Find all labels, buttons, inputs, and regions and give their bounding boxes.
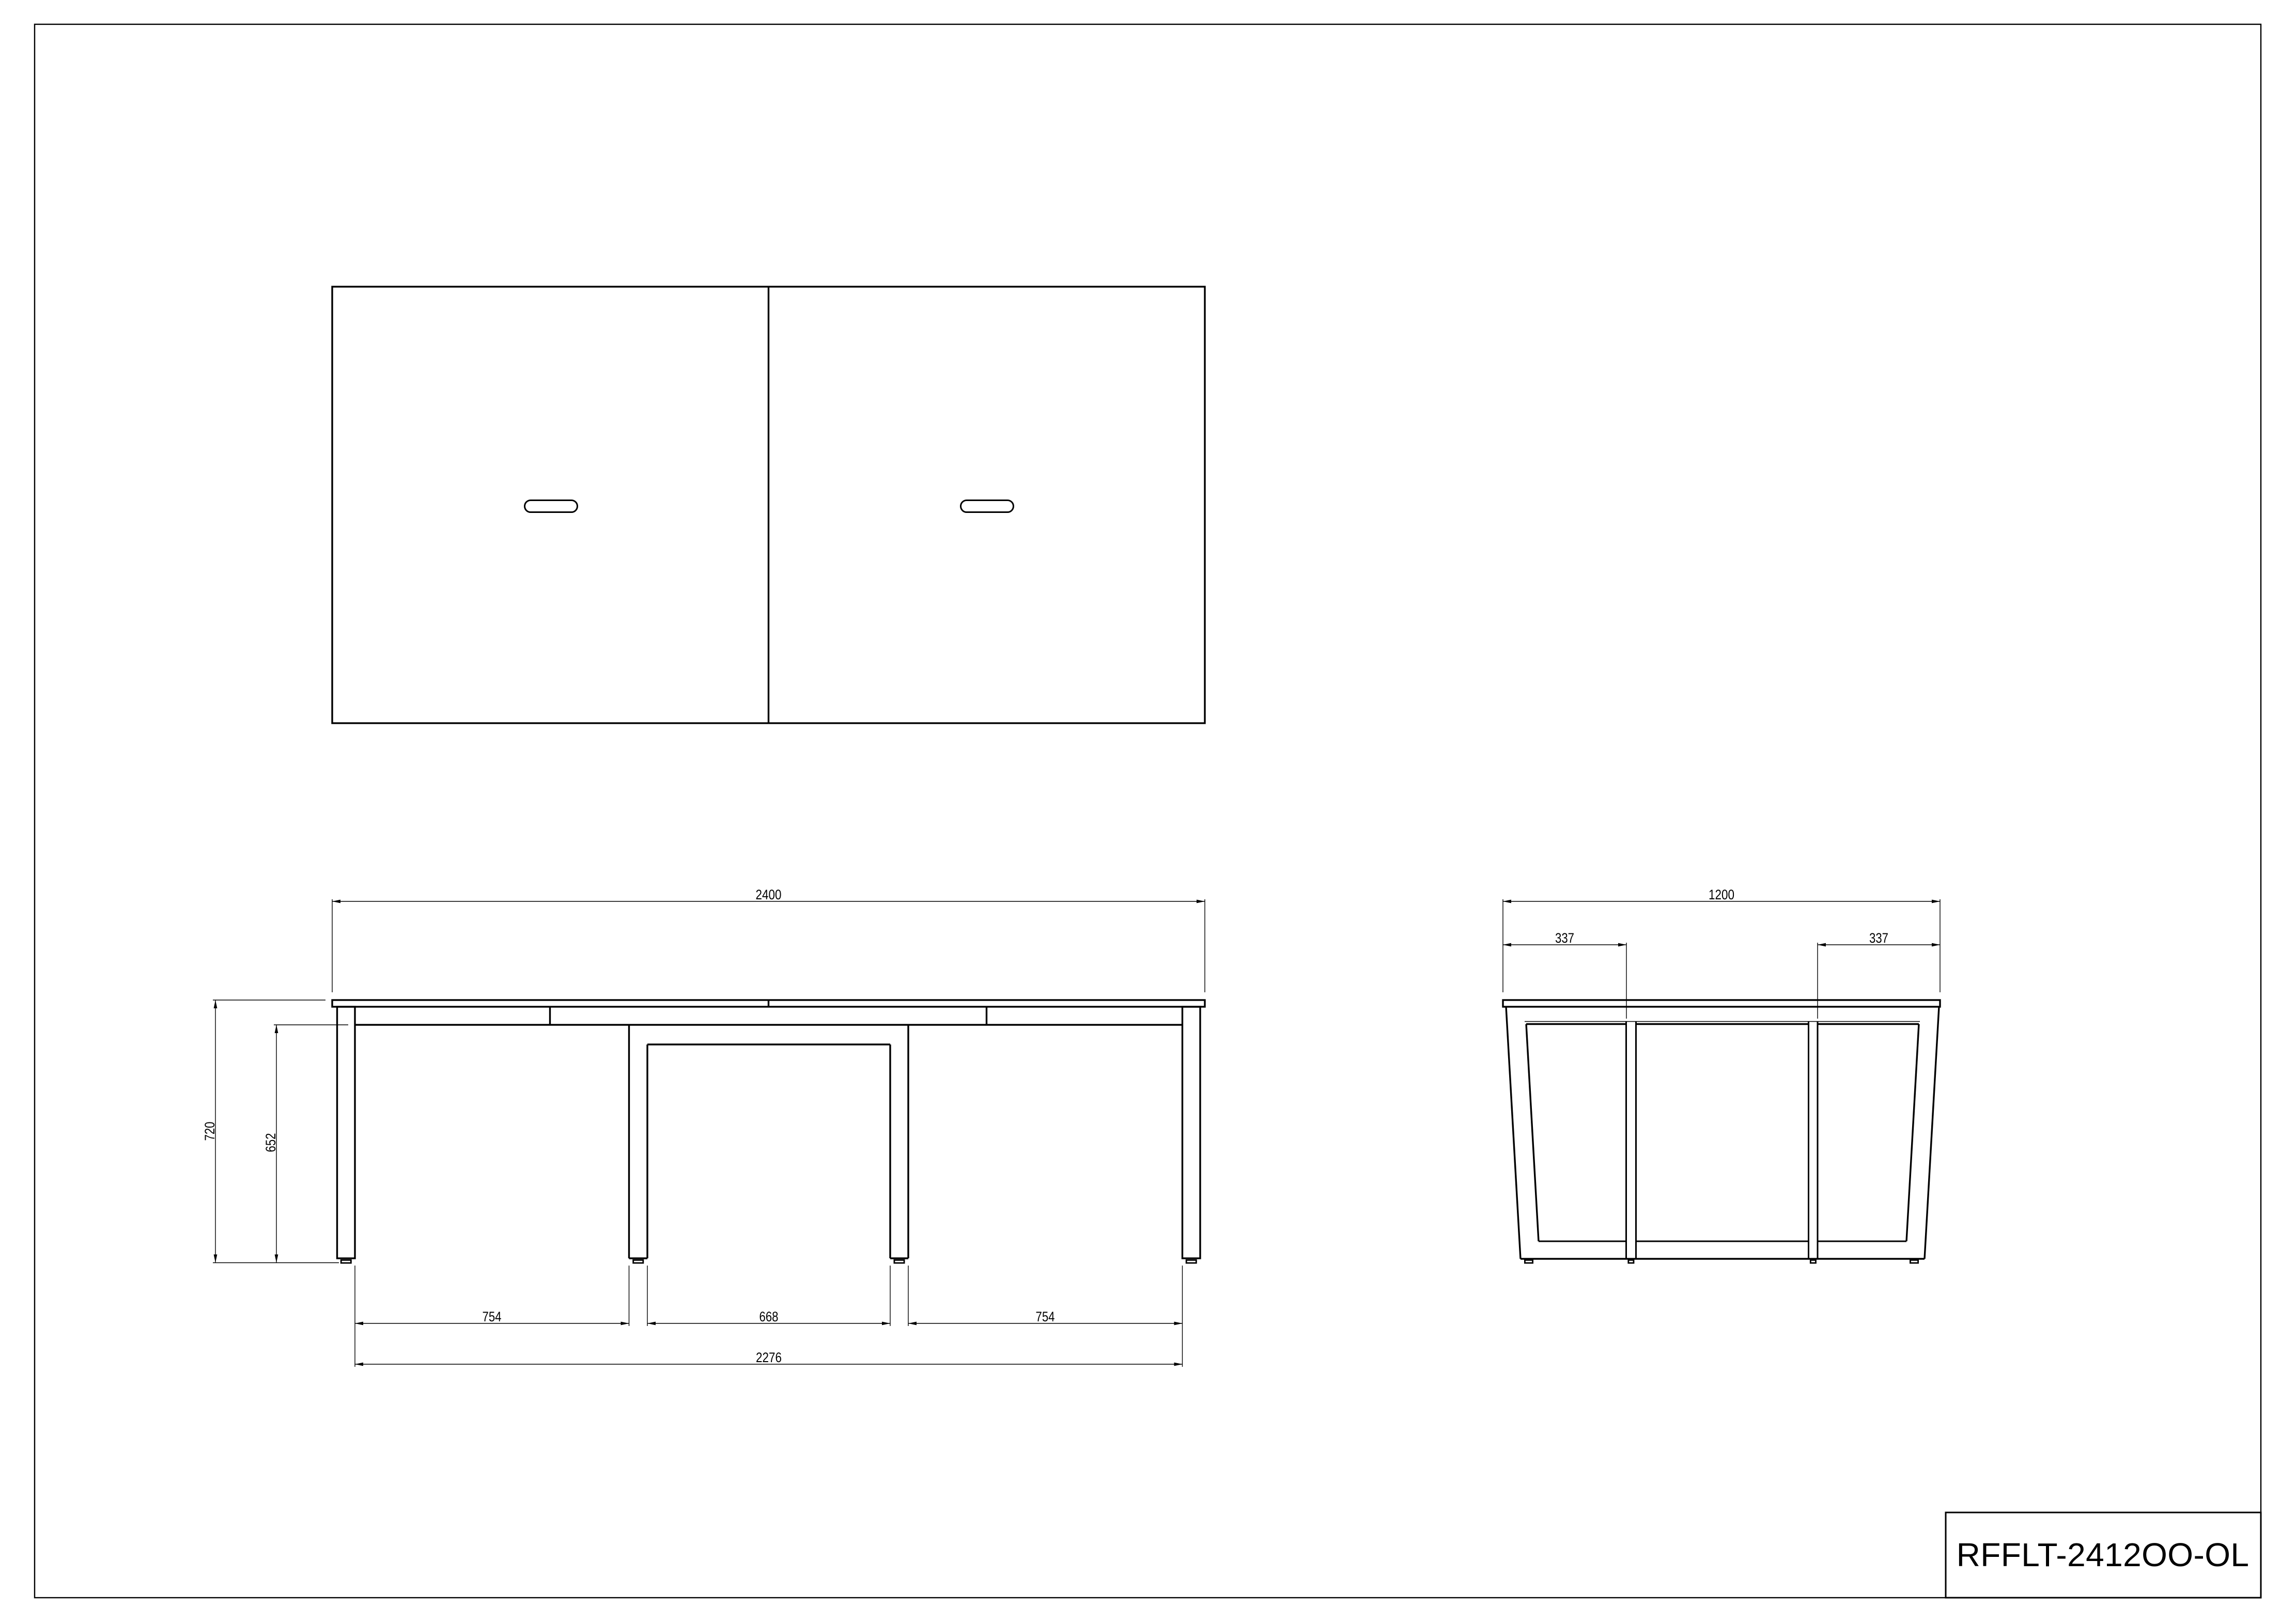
svg-text:337: 337 xyxy=(1869,930,1888,946)
svg-text:337: 337 xyxy=(1555,930,1574,946)
svg-text:754: 754 xyxy=(1036,1309,1055,1324)
svg-text:RFFLT-2412OO-OL: RFFLT-2412OO-OL xyxy=(1957,1536,2250,1573)
svg-text:2400: 2400 xyxy=(756,887,782,902)
svg-text:652: 652 xyxy=(263,1133,278,1152)
svg-text:754: 754 xyxy=(483,1309,502,1324)
svg-text:668: 668 xyxy=(759,1309,779,1324)
svg-text:720: 720 xyxy=(202,1122,218,1141)
svg-text:2276: 2276 xyxy=(756,1350,782,1365)
svg-text:1200: 1200 xyxy=(1709,887,1734,902)
